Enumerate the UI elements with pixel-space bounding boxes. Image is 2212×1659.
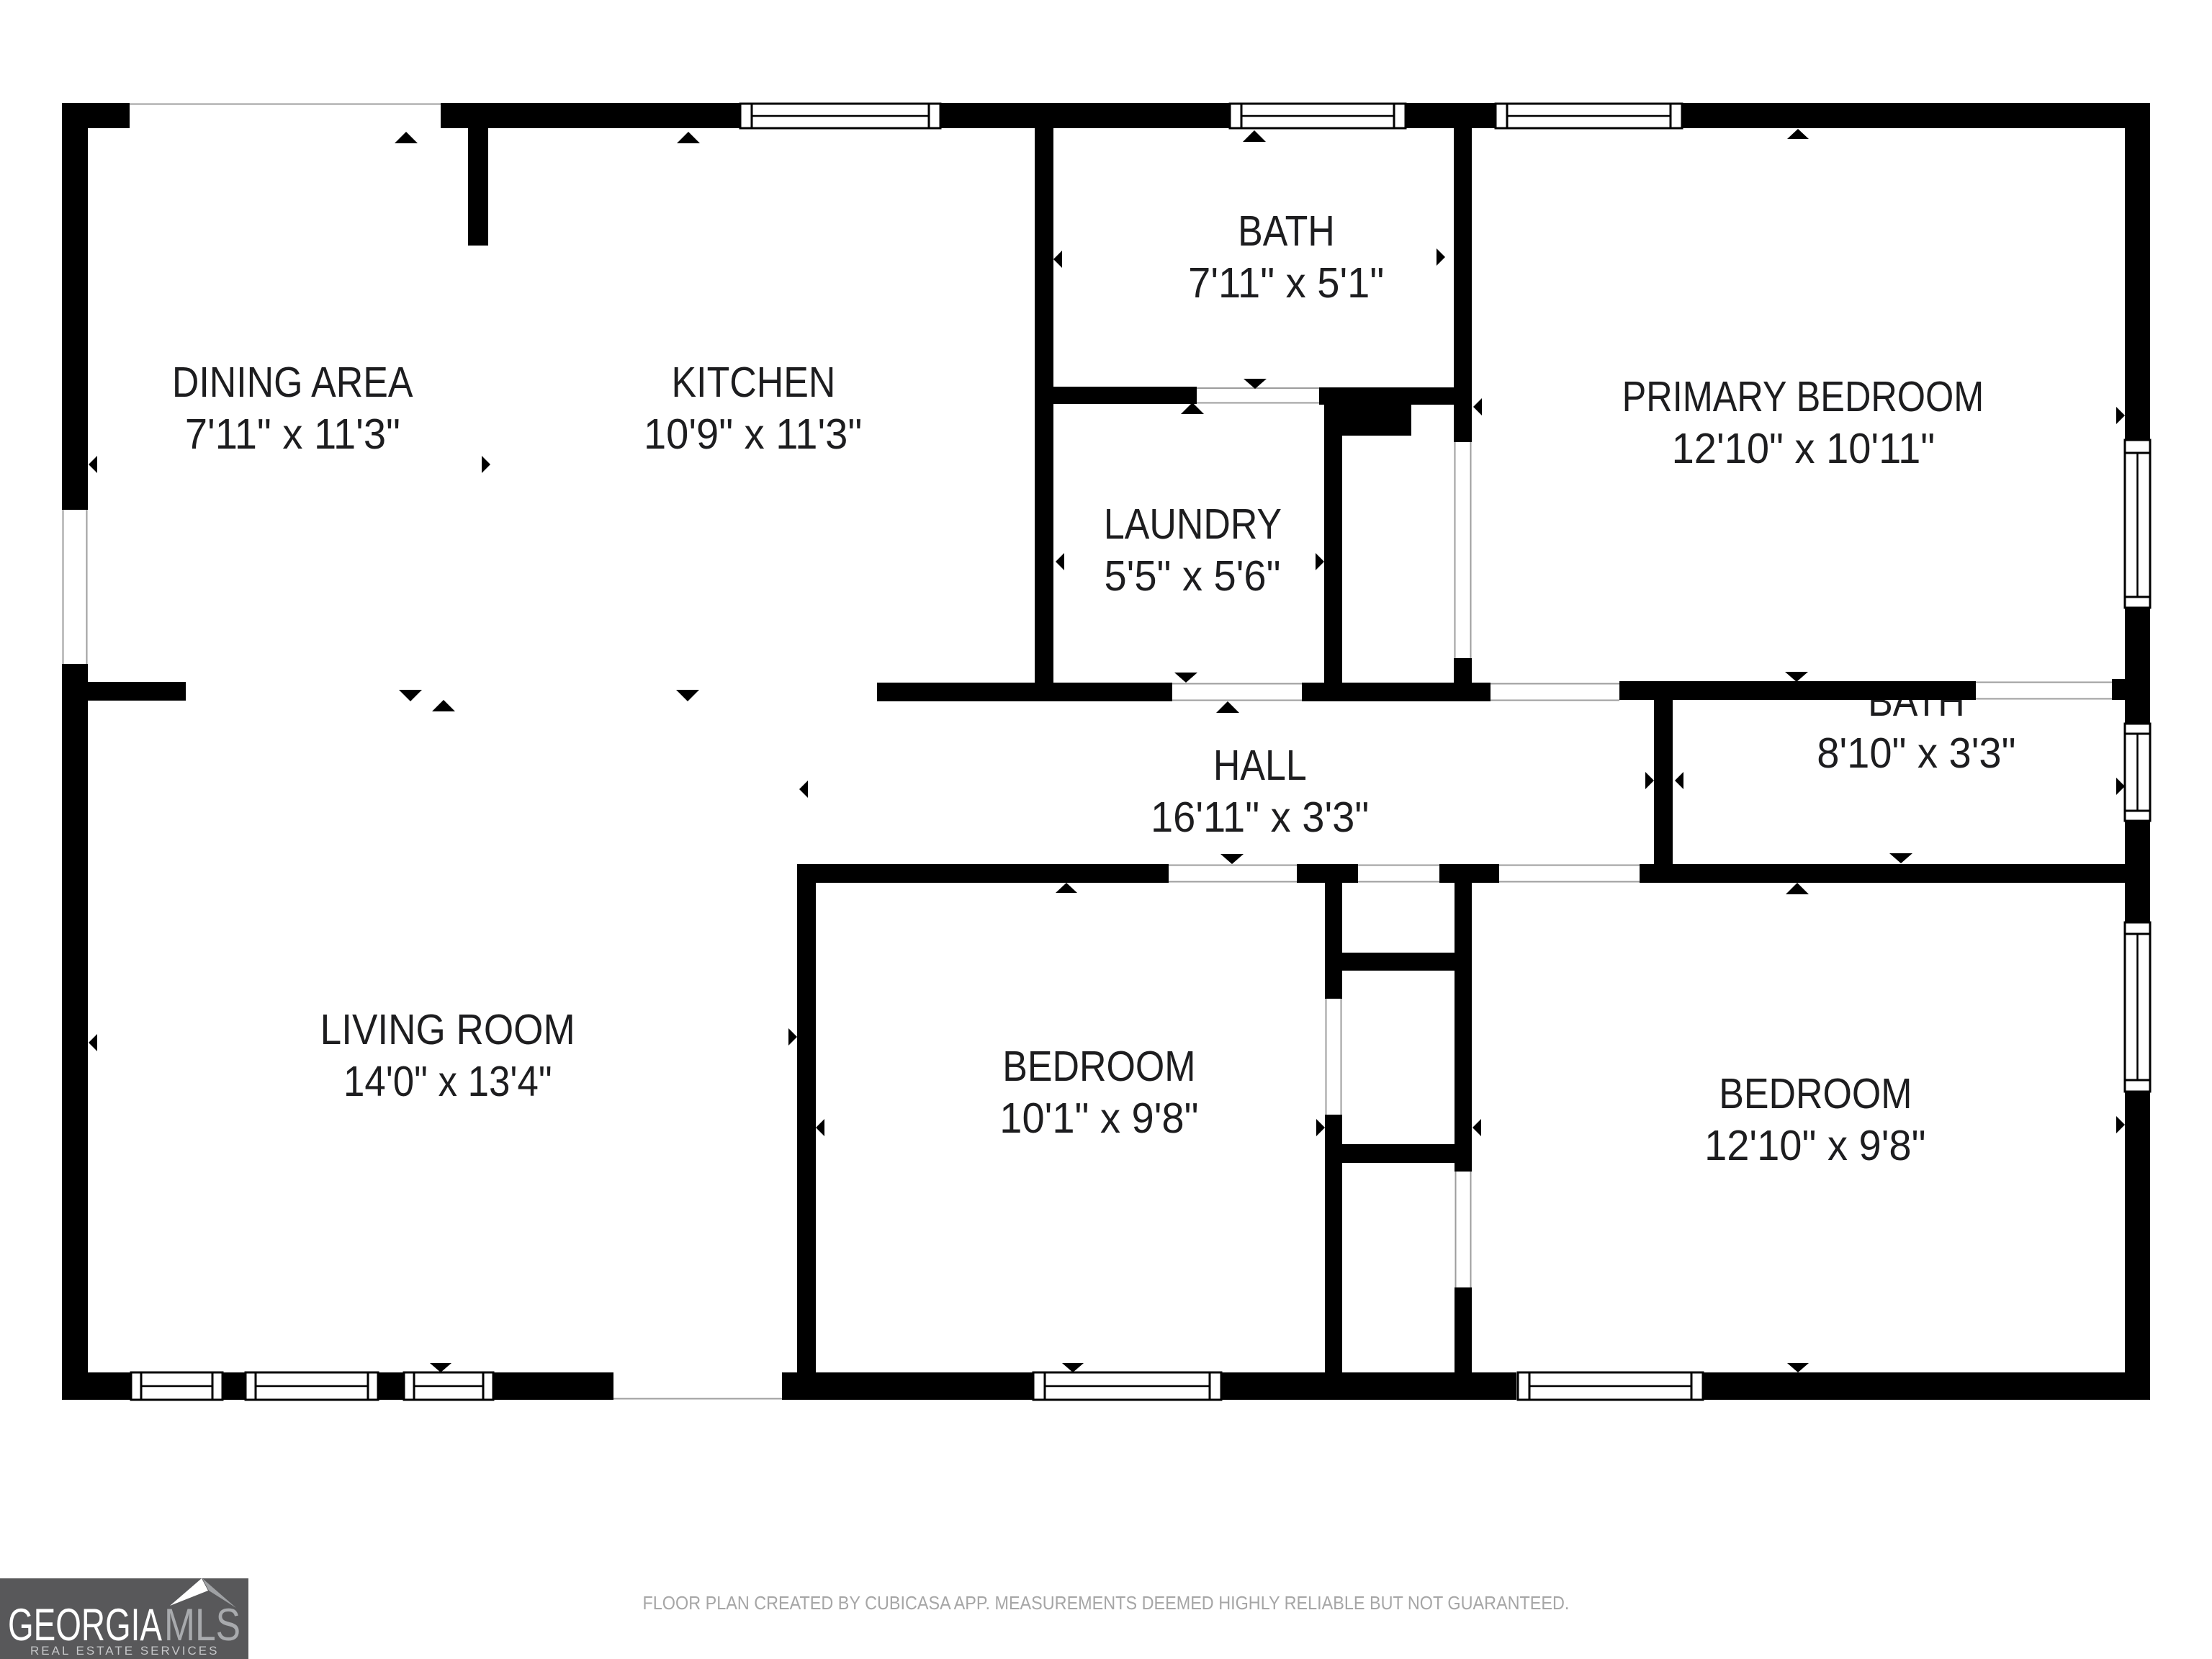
svg-text:MLS: MLS (164, 1600, 240, 1650)
svg-text:REAL ESTATE SERVICES: REAL ESTATE SERVICES (30, 1644, 220, 1658)
svg-text:GEORGIA: GEORGIA (8, 1600, 162, 1650)
